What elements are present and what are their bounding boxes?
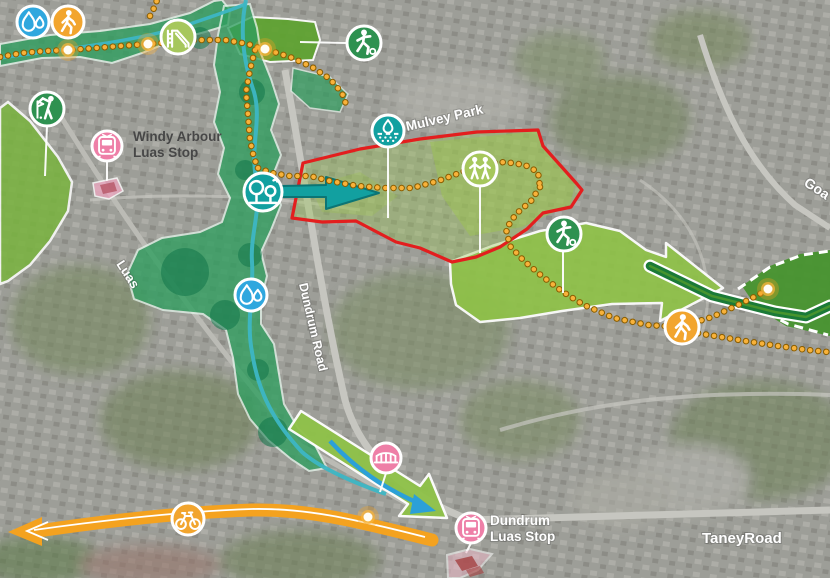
water-quality-marker-top[interactable] (17, 6, 49, 38)
dundrum-label-line1: Dundrum (490, 513, 550, 528)
cycle-route-marker[interactable] (172, 503, 204, 535)
map-canvas: Windy Arbour Luas Stop Mulvey Park Luas … (0, 0, 830, 578)
golf-course-marker[interactable] (30, 92, 64, 126)
dundrum-luas-stop-marker[interactable] (456, 513, 486, 543)
masterplan-aerial-map: Windy Arbour Luas Stop Mulvey Park Luas … (0, 0, 830, 578)
windy-arbour-luas-stop-marker[interactable] (92, 131, 122, 161)
water-quality-marker-mid[interactable] (235, 279, 267, 311)
taney-road-label: TaneyRoad (702, 530, 782, 547)
sports-pitch-marker-top[interactable] (347, 26, 381, 60)
sports-pitch-marker-mid[interactable] (547, 217, 581, 251)
parkland-trees-marker[interactable] (244, 173, 282, 211)
windy-arbour-label-line2: Luas Stop (133, 145, 198, 160)
walking-route-marker-top[interactable] (52, 6, 84, 38)
playground-marker[interactable] (161, 20, 195, 54)
bridge-marker[interactable] (371, 443, 401, 473)
dundrum-label-line2: Luas Stop (490, 529, 555, 544)
pedestrian-route-marker[interactable] (665, 310, 699, 344)
drainage-marker[interactable] (372, 115, 404, 147)
windy-arbour-label-line1: Windy Arbour (133, 129, 222, 144)
community-marker[interactable] (463, 152, 497, 186)
